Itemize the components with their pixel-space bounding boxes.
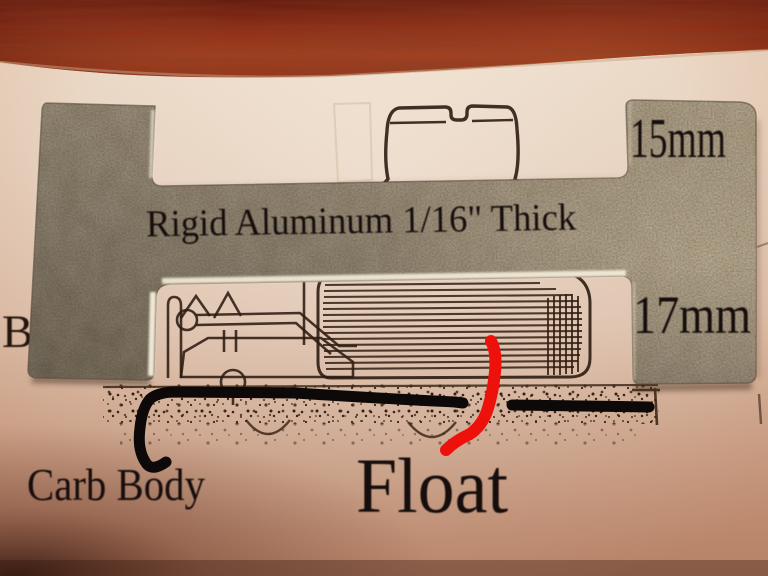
dim-15mm-label: 15mm <box>630 108 726 170</box>
float-label: Float <box>356 442 508 529</box>
photo-scene: B <box>0 0 768 576</box>
bottom-edge-shade <box>0 560 768 576</box>
photo-svg: B <box>0 0 768 576</box>
carb-body-label: Carb Body <box>27 459 205 510</box>
float-hatch-horizontal <box>323 283 582 369</box>
gauge-thickness-label: Rigid Aluminum 1/16" Thick <box>146 197 577 246</box>
dim-17mm-label: 17mm <box>633 285 751 345</box>
